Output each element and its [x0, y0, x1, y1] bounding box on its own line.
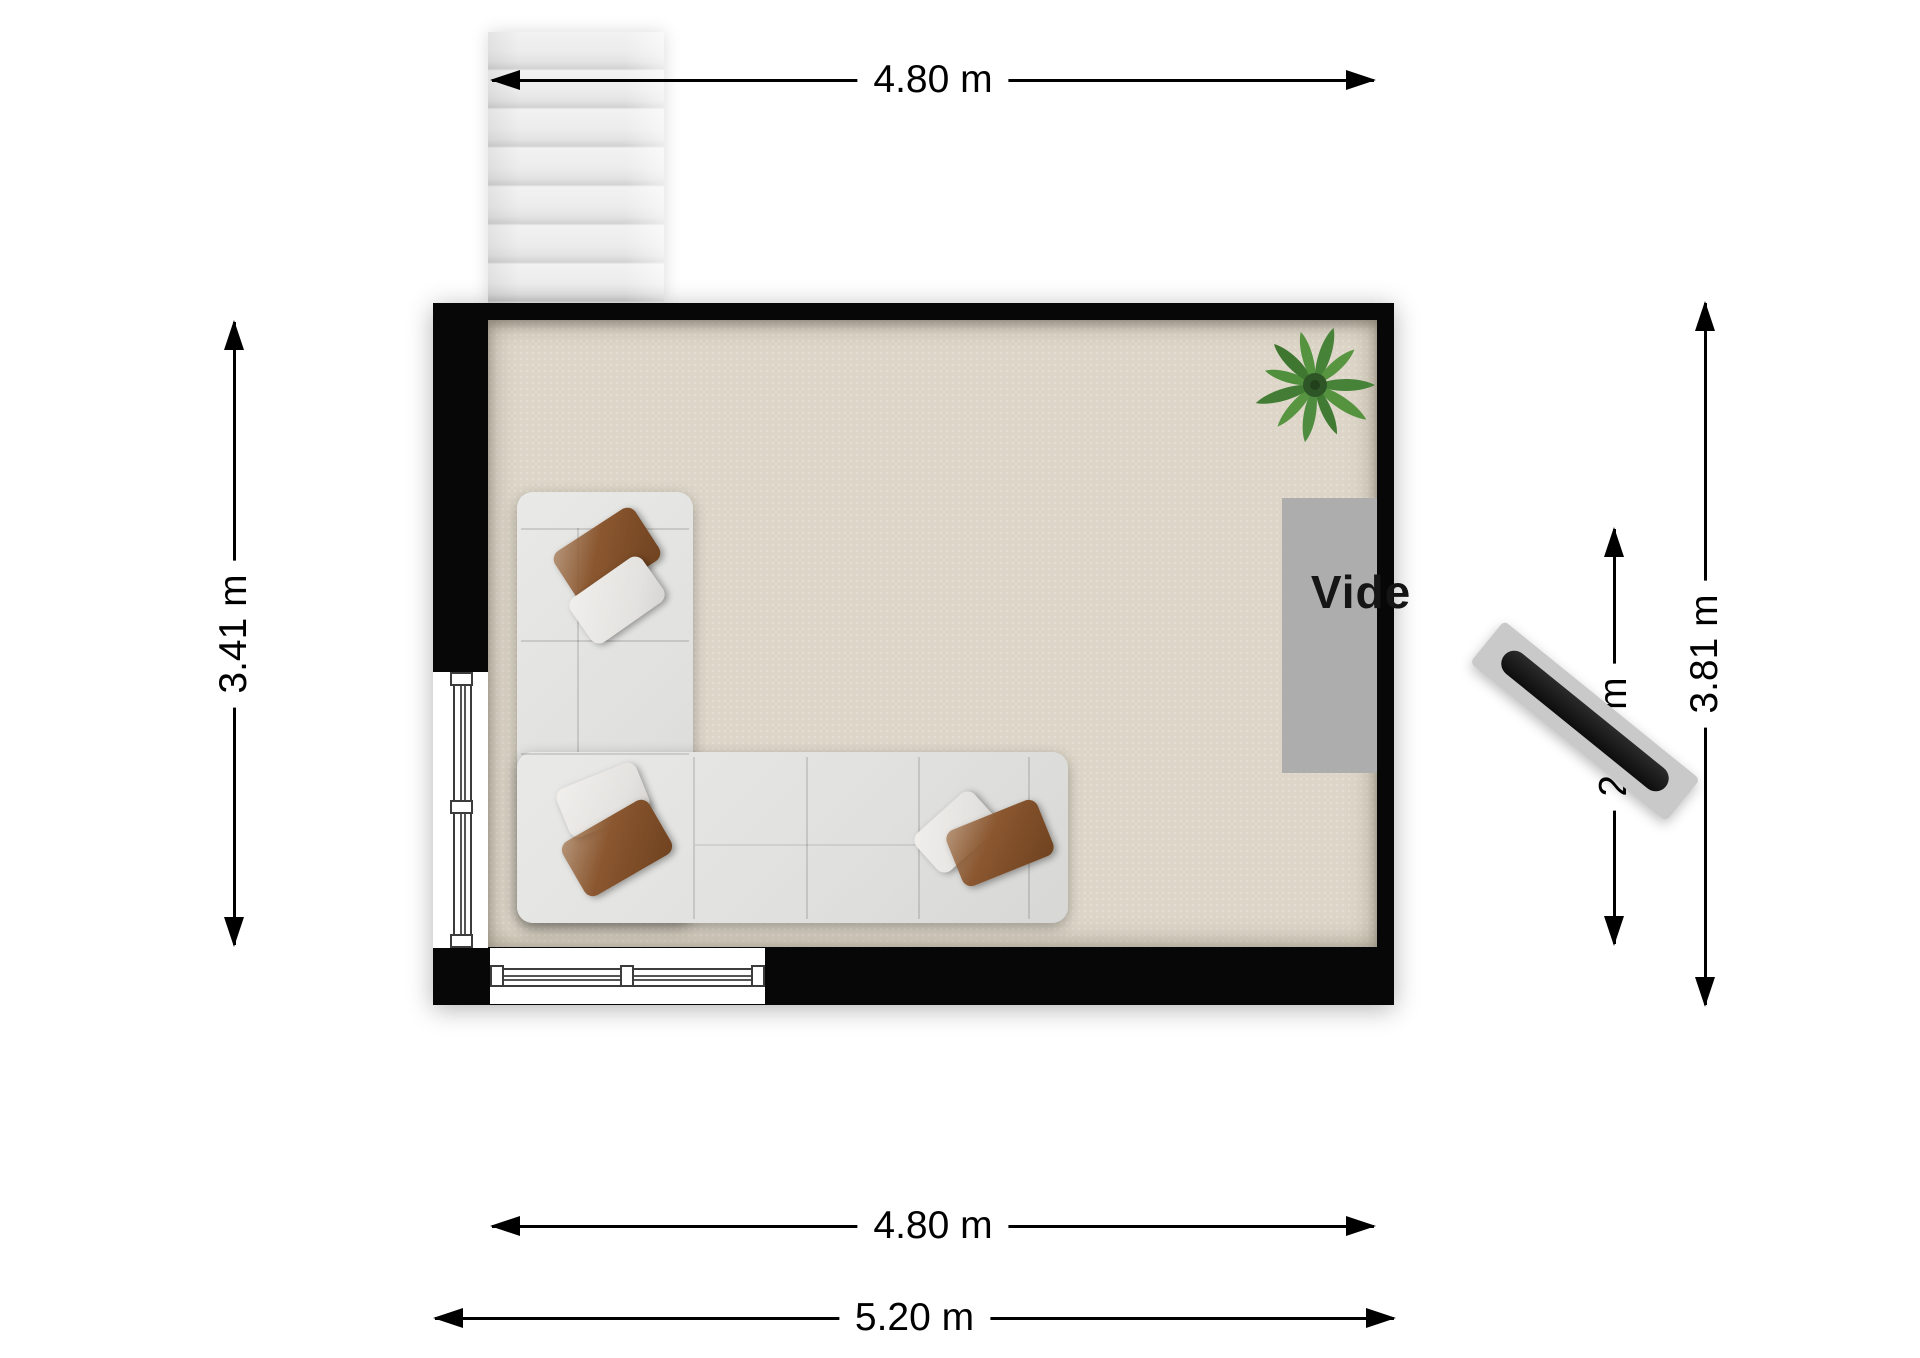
window-left: [433, 672, 488, 948]
dimension-top-inner: 4.80 m: [492, 56, 1374, 104]
window-mullion: [450, 672, 473, 686]
window-mullion: [450, 934, 473, 948]
dimension-label: 5.20 m: [839, 1294, 990, 1342]
radiator: [1496, 645, 1674, 796]
arrowhead-left-icon: [433, 1308, 463, 1328]
dimension-label: 3.81 m: [1681, 580, 1729, 727]
floorplan-page: { "plan": { "room_label": "Vide", "dimen…: [0, 0, 1920, 1358]
arrowhead-up-icon: [224, 320, 244, 350]
window-bottom: [490, 948, 765, 1004]
arrowhead-left-icon: [490, 1216, 520, 1236]
arrowhead-left-icon: [490, 70, 520, 90]
void-opening: [1282, 498, 1377, 773]
arrowhead-up-icon: [1604, 527, 1624, 557]
dimension-bottom-inner: 4.80 m: [492, 1202, 1374, 1250]
sofa-seam: [521, 753, 689, 755]
window-mullion: [620, 965, 634, 987]
arrowhead-down-icon: [224, 917, 244, 947]
arrowhead-right-icon: [1366, 1308, 1396, 1328]
room-label: Vide: [1161, 565, 1561, 619]
dimension-label: 3.41 m: [210, 560, 258, 707]
window-mullion: [490, 965, 504, 987]
potted-plant-icon: [1247, 317, 1383, 453]
window-mullion: [450, 800, 473, 814]
arrowhead-right-icon: [1346, 1216, 1376, 1236]
arrowhead-down-icon: [1695, 977, 1715, 1007]
dimension-label: 4.80 m: [857, 56, 1008, 104]
dimension-right-outer: 3.81 m: [1681, 303, 1729, 1005]
dimension-bottom-outer: 5.20 m: [435, 1294, 1394, 1342]
arrowhead-right-icon: [1346, 70, 1376, 90]
room-vide-walls: Vide: [433, 303, 1394, 1005]
arrowhead-down-icon: [1604, 916, 1624, 946]
sofa-seam: [693, 757, 695, 919]
window-mullion: [751, 965, 765, 987]
sofa: [517, 492, 1068, 923]
dimension-label: 4.80 m: [857, 1202, 1008, 1250]
sofa-seam: [806, 757, 808, 919]
arrowhead-up-icon: [1695, 301, 1715, 331]
dimension-left-inner: 3.41 m: [210, 322, 258, 945]
